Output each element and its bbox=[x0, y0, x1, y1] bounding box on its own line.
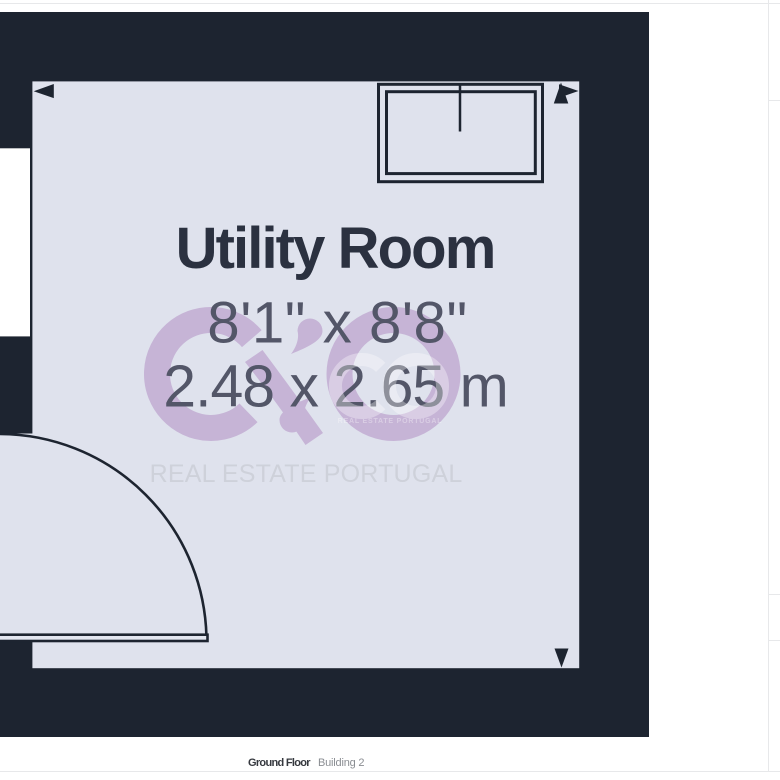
svg-text:REAL ESTATE PORTUGAL: REAL ESTATE PORTUGAL bbox=[338, 418, 443, 425]
svg-text:8'1" x 8'8": 8'1" x 8'8" bbox=[207, 291, 467, 356]
svg-text:Ground Floor: Ground Floor bbox=[248, 757, 311, 769]
svg-text:Utility Room: Utility Room bbox=[176, 216, 495, 281]
svg-text:Building 2: Building 2 bbox=[318, 757, 364, 769]
svg-text:REAL ESTATE PORTUGAL: REAL ESTATE PORTUGAL bbox=[150, 460, 463, 488]
